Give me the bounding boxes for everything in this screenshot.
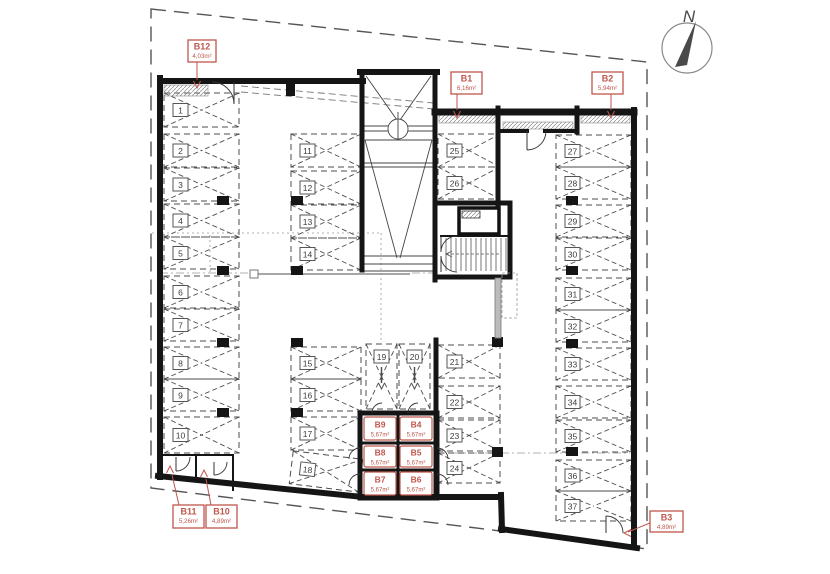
parking-space-9: 9 — [164, 379, 239, 411]
svg-text:28: 28 — [568, 179, 578, 189]
svg-text:27: 27 — [568, 147, 578, 157]
svg-text:18: 18 — [302, 464, 313, 475]
svg-text:11: 11 — [303, 146, 312, 156]
space-number: 19 — [374, 350, 389, 363]
parking-space-17: 17 — [291, 417, 361, 450]
parking-space-20: 20 — [399, 344, 430, 409]
space-number: 36 — [565, 469, 580, 482]
svg-text:17: 17 — [303, 429, 313, 439]
parking-space-5: 5 — [164, 237, 239, 269]
space-number: 1 — [173, 104, 188, 117]
space-number: 17 — [300, 427, 315, 440]
svg-text:B6: B6 — [411, 475, 422, 485]
svg-text:2: 2 — [178, 146, 183, 156]
parking-space-10: 10 — [164, 417, 239, 453]
svg-text:8: 8 — [178, 359, 183, 369]
space-number: 4 — [173, 214, 188, 227]
svg-text:14: 14 — [303, 250, 313, 260]
svg-text:10: 10 — [176, 431, 186, 441]
svg-text:20: 20 — [410, 352, 420, 362]
storage-cell-B7: B75,67m² — [364, 472, 396, 495]
svg-text:4,89m²: 4,89m² — [212, 518, 231, 525]
svg-text:13: 13 — [303, 217, 313, 227]
svg-text:6: 6 — [178, 288, 183, 298]
parking-space-22: 22 — [438, 386, 500, 418]
space-number: 2 — [173, 144, 188, 157]
north-label: N — [683, 7, 696, 26]
svg-text:36: 36 — [568, 471, 578, 481]
space-number: 34 — [565, 396, 580, 409]
svg-text:4,03m²: 4,03m² — [192, 53, 211, 60]
svg-text:B5: B5 — [411, 448, 422, 458]
parking-space-2: 2 — [164, 134, 239, 167]
space-number: 33 — [565, 358, 580, 371]
svg-text:5,67m²: 5,67m² — [407, 488, 426, 494]
space-number: 18 — [299, 462, 315, 477]
svg-text:35: 35 — [568, 432, 578, 442]
space-number: 37 — [565, 500, 580, 513]
space-number: 14 — [300, 248, 315, 261]
space-number: 27 — [565, 145, 580, 158]
section-bar — [495, 273, 517, 338]
parking-space-15: 15 — [291, 347, 361, 379]
space-number: 22 — [447, 396, 462, 409]
svg-text:24: 24 — [450, 464, 460, 474]
svg-text:12: 12 — [303, 183, 313, 193]
svg-text:7: 7 — [178, 321, 183, 331]
svg-text:37: 37 — [568, 502, 578, 512]
space-number: 8 — [173, 357, 188, 370]
svg-text:B4: B4 — [411, 420, 422, 430]
svg-text:B2: B2 — [602, 74, 614, 84]
svg-text:6,16m²: 6,16m² — [457, 85, 476, 92]
svg-text:5,67m²: 5,67m² — [407, 433, 426, 439]
space-number: 9 — [173, 389, 188, 402]
parking-space-26: 26 — [438, 167, 500, 199]
svg-text:32: 32 — [568, 322, 578, 332]
svg-text:9: 9 — [178, 391, 183, 401]
svg-text:5,94m²: 5,94m² — [598, 85, 617, 92]
parking-space-24: 24 — [438, 453, 500, 483]
svg-text:5,26m²: 5,26m² — [179, 518, 198, 525]
parking-space-13: 13 — [291, 205, 361, 238]
storage-cell-B8: B85,67m² — [364, 446, 396, 467]
stair-elevator-core — [446, 208, 506, 271]
parking-space-29: 29 — [556, 205, 631, 237]
space-number: 7 — [173, 319, 188, 332]
svg-text:34: 34 — [568, 398, 578, 408]
svg-text:30: 30 — [568, 250, 578, 260]
north-needle — [675, 21, 696, 67]
parking-space-34: 34 — [556, 386, 631, 418]
parking-space-19: 19 — [366, 344, 397, 409]
svg-text:16: 16 — [303, 391, 313, 401]
floor-plan-canvas: 1234567891011121314151617181920212223242… — [0, 0, 830, 574]
space-number: 29 — [565, 215, 580, 228]
parking-space-1: 1 — [164, 93, 239, 127]
parking-space-31: 31 — [556, 278, 631, 310]
parking-space-28: 28 — [556, 167, 631, 199]
space-number: 31 — [565, 288, 580, 301]
space-number: 35 — [565, 430, 580, 443]
svg-text:22: 22 — [450, 398, 460, 408]
svg-text:33: 33 — [568, 360, 578, 370]
space-number: 20 — [407, 350, 422, 363]
parking-space-23: 23 — [438, 420, 500, 451]
svg-text:B10: B10 — [213, 507, 230, 517]
svg-text:5,67m²: 5,67m² — [407, 461, 426, 467]
parking-space-33: 33 — [556, 348, 631, 380]
svg-text:21: 21 — [450, 357, 460, 367]
svg-text:3: 3 — [178, 180, 183, 190]
storage-cell-B9: B95,67m² — [364, 417, 396, 440]
svg-text:31: 31 — [568, 290, 578, 300]
svg-text:B1: B1 — [461, 74, 473, 84]
space-number: 30 — [565, 248, 580, 261]
parking-space-7: 7 — [164, 309, 239, 341]
space-number: 25 — [447, 144, 462, 157]
space-number: 24 — [447, 462, 462, 475]
space-number: 11 — [300, 144, 315, 157]
parking-space-4: 4 — [164, 204, 239, 237]
svg-text:29: 29 — [568, 217, 578, 227]
callout-B11: B115,26m² — [167, 466, 205, 528]
svg-text:25: 25 — [450, 146, 460, 156]
space-number: 15 — [300, 357, 315, 370]
svg-text:26: 26 — [450, 179, 460, 189]
svg-text:4,89m²: 4,89m² — [657, 524, 676, 531]
svg-text:23: 23 — [450, 431, 460, 441]
space-number: 13 — [300, 215, 315, 228]
parking-space-14: 14 — [291, 238, 361, 270]
space-number: 10 — [173, 429, 188, 442]
storage-cell-B6: B65,67m² — [400, 472, 432, 495]
svg-text:B7: B7 — [375, 475, 386, 485]
floor-plan: 1234567891011121314151617181920212223242… — [0, 0, 830, 574]
svg-text:5: 5 — [178, 249, 183, 259]
storage-cell-B4: B45,67m² — [400, 417, 432, 440]
svg-text:1: 1 — [178, 106, 183, 116]
svg-text:19: 19 — [377, 352, 387, 362]
parking-space-6: 6 — [164, 276, 239, 308]
space-number: 16 — [300, 389, 315, 402]
svg-text:B12: B12 — [194, 42, 211, 52]
space-number: 12 — [300, 181, 315, 194]
parking-space-27: 27 — [556, 135, 631, 167]
parking-space-16: 16 — [291, 379, 361, 411]
car-ramp — [364, 76, 433, 271]
svg-text:4: 4 — [178, 216, 183, 226]
svg-text:5,67m²: 5,67m² — [371, 433, 390, 439]
space-number: 28 — [565, 177, 580, 190]
space-number: 3 — [173, 178, 188, 191]
svg-text:15: 15 — [303, 359, 313, 369]
svg-text:B9: B9 — [375, 420, 386, 430]
space-number: 5 — [173, 247, 188, 260]
parking-space-21: 21 — [438, 345, 500, 378]
parking-space-8: 8 — [164, 347, 239, 379]
north-arrow: N — [662, 7, 712, 73]
svg-text:5,67m²: 5,67m² — [371, 461, 390, 467]
parking-space-25: 25 — [438, 134, 500, 167]
parking-space-37: 37 — [556, 491, 631, 521]
parking-space-36: 36 — [556, 460, 631, 491]
svg-text:5,67m²: 5,67m² — [371, 488, 390, 494]
parking-space-30: 30 — [556, 238, 631, 270]
space-number: 23 — [447, 429, 462, 442]
space-number: 21 — [447, 355, 462, 368]
parking-space-11: 11 — [291, 134, 361, 167]
parking-space-32: 32 — [556, 310, 631, 342]
svg-text:B11: B11 — [180, 507, 196, 517]
svg-text:B3: B3 — [661, 513, 673, 523]
space-number: 32 — [565, 320, 580, 333]
parking-space-18: 18 — [289, 451, 362, 492]
space-number: 6 — [173, 286, 188, 299]
storage-cell-B5: B55,67m² — [400, 446, 432, 467]
svg-text:B8: B8 — [375, 448, 386, 458]
space-number: 26 — [447, 177, 462, 190]
